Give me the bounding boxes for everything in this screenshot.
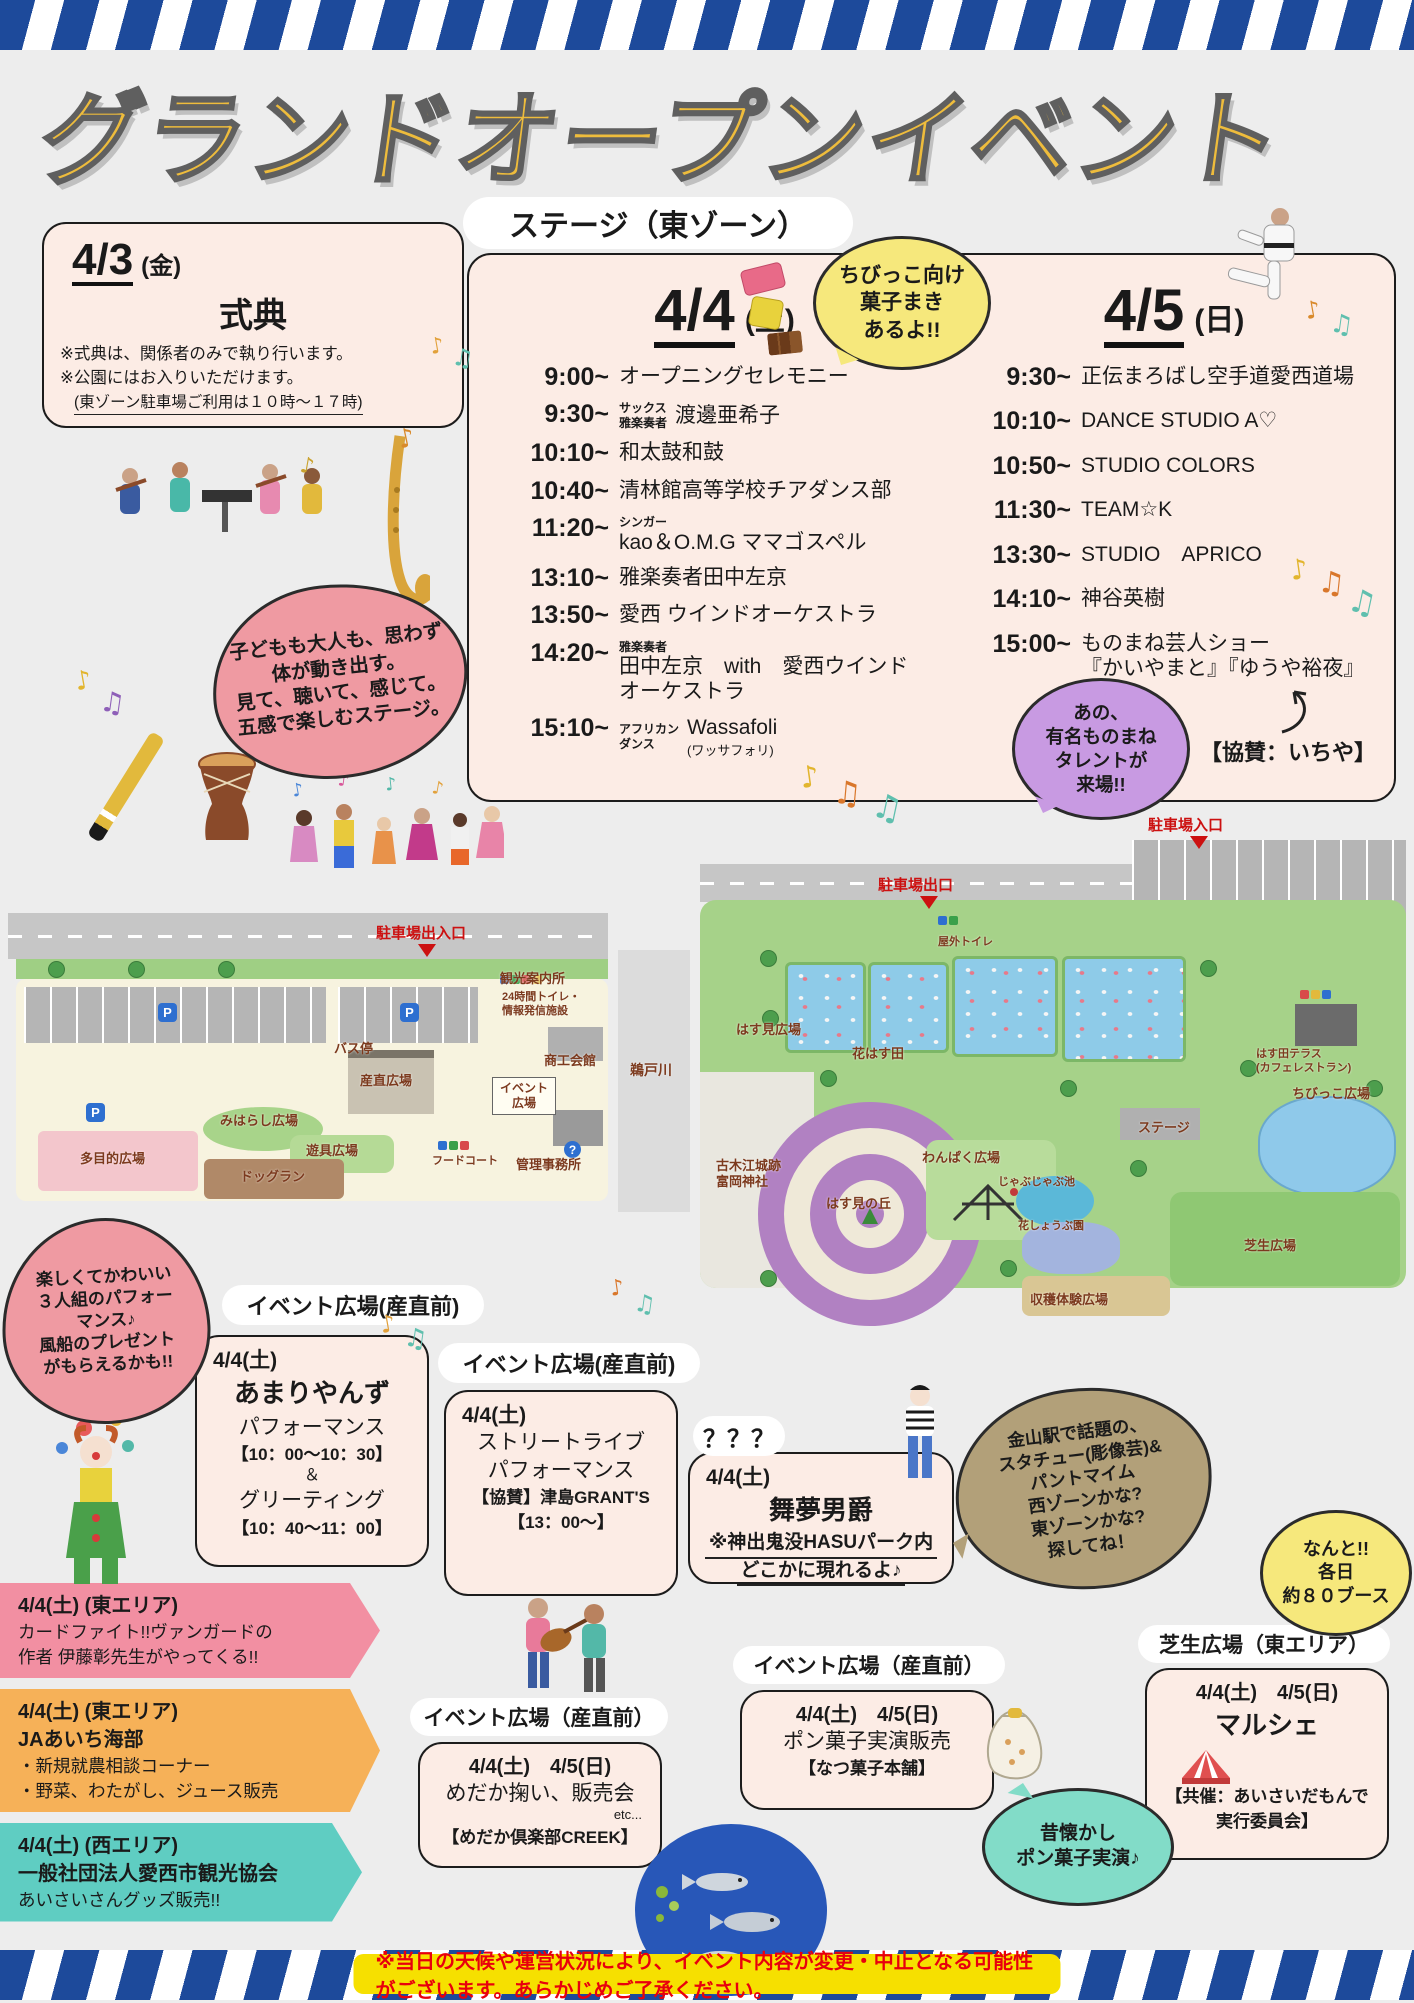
text-line: 実行委員会】: [1216, 1811, 1318, 1833]
schedule-row: 9:30~サックス 雅楽奏者渡邊亜希子: [507, 401, 942, 430]
map-label: わんぱく広場: [922, 1150, 1000, 1166]
statue-bubble: 金山駅で話題の、 スタチュー(彫像芸)& パントマイム 西ゾーンかな? 東ゾーン…: [944, 1373, 1225, 1605]
ceremony-date: 4/3: [72, 238, 133, 286]
schedule-act-wrap: TEAM☆K: [1081, 497, 1172, 522]
schedule-row: 10:10~DANCE STUDIO A♡: [969, 408, 1379, 436]
map-label: 管理事務所: [516, 1157, 581, 1173]
schedule-act: STUDIO COLORS: [1081, 453, 1255, 478]
schedule-act: 田中左京 with 愛西ウインド オーケストラ: [619, 654, 908, 704]
day1-date: 4/4: [654, 281, 735, 348]
text-line: パフォーマンス: [239, 1414, 386, 1441]
west-zone-map: P P P ? バス停観光案内所24時間トイレ・ 情報発信施設産直広場イベント …: [8, 905, 608, 1205]
text-line: 【共催：あいさいだもんで: [1165, 1786, 1368, 1808]
toilet-icons: [938, 916, 958, 925]
medaka-box: 4/4(土) 4/5(日)めだか掬い、販売会etc...【めだか倶楽部CREEK…: [418, 1742, 662, 1868]
ceremony-note-2: ※公園にはお入りいただけます。: [60, 367, 462, 391]
text-line: 4/4(土): [462, 1402, 526, 1429]
schedule-act-wrap: オープニングセレモニー: [619, 364, 849, 389]
map-label: 花はす田: [852, 1046, 904, 1062]
schedule-time: 15:00~: [969, 631, 1071, 659]
band-illustration: [110, 450, 325, 542]
schedule-body: アフリカン ダンスWassafoli(ワッサフォリ): [619, 715, 777, 759]
text-line: 4/4(土) 4/5(日): [1196, 1680, 1338, 1706]
schedule-act-wrap: DANCE STUDIO A♡: [1081, 408, 1277, 433]
schedule-body: ものまね芸人ショー 『かいやまと』『ゆうや裕夜』: [1081, 631, 1365, 681]
music-note-icon: ♪: [73, 665, 95, 697]
schedule-row: 11:20~シンガーkao＆O.M.G ママゴスペル: [507, 515, 942, 555]
east-zone-map: 屋外トイレはす見広場花はす田はす田テラス (カフェレストラン)ちびっこ広場ステー…: [700, 840, 1406, 1318]
schedule-row: 13:30~STUDIO APRICO: [969, 542, 1379, 570]
parking-icon: P: [400, 1003, 419, 1022]
schedule-act-wrap: 雅楽奏者田中左京: [619, 565, 787, 590]
text-line: ストリートライブ: [477, 1429, 645, 1456]
schedule-act: 清林館高等学校チアダンス部: [619, 478, 892, 503]
schedule-genre: 雅楽奏者: [619, 640, 908, 654]
guitar-duo-illustration: [498, 1588, 628, 1714]
west-entrance-label: 駐車場出入口: [376, 922, 466, 943]
schedule-row: 10:40~清林館高等学校チアダンス部: [507, 478, 942, 506]
map-label: イベント 広場: [492, 1077, 556, 1115]
schedule-body: DANCE STUDIO A♡: [1081, 408, 1277, 433]
schedule-act: 神谷英樹: [1081, 586, 1165, 611]
map-label: 産直広場: [360, 1073, 412, 1089]
music-note-icon: ♫: [868, 785, 906, 830]
map-label: 収穫体験広場: [1030, 1292, 1108, 1308]
schedule-row: 14:20~雅楽奏者田中左京 with 愛西ウインド オーケストラ: [507, 640, 942, 705]
ribbon-line: 4/4(土) (西エリア): [18, 1832, 314, 1860]
street-area-pill: イベント広場(産直前): [438, 1343, 700, 1383]
schedule-time: 13:10~: [507, 565, 609, 593]
west-map-labels: バス停観光案内所24時間トイレ・ 情報発信施設産直広場イベント 広場商工会館みは…: [8, 905, 608, 1205]
schedule-genre: アフリカン ダンス: [619, 722, 679, 751]
ceremony-note-1: ※式典は、関係者のみで執り行います。: [60, 343, 462, 367]
amari-box: 4/4(土)あまりやんずパフォーマンス【10：00〜10：30】＆グリーティング…: [195, 1335, 429, 1567]
schedule-act: 和太鼓和鼓: [619, 440, 724, 465]
day2-date: 4/5: [1104, 281, 1185, 348]
text-line: 【10：00〜10：30】: [232, 1444, 393, 1466]
schedule-act: 渡邊亜希子: [675, 403, 780, 428]
river-label: 鵜戸川: [630, 1062, 672, 1080]
east-entrance-out-arrow: [920, 896, 938, 918]
schedule-act: STUDIO APRICO: [1081, 542, 1262, 567]
east-entrance-in-arrow: [1190, 836, 1208, 858]
map-label: フードコート: [432, 1155, 498, 1169]
ribbon-line: JAあいち海部: [18, 1726, 332, 1754]
map-label: 花しょうぶ園: [1018, 1220, 1084, 1234]
river: [618, 950, 690, 1212]
schedule-body: 正伝まろばし空手道愛西道場: [1081, 364, 1354, 389]
info-ribbon: 4/4(土) (東エリア)JAあいち海部・新規就農相談コーナー・野菜、わたがし、…: [0, 1689, 380, 1812]
schedule-body: 和太鼓和鼓: [619, 440, 724, 465]
amari-area-pill: イベント広場(産直前): [222, 1285, 484, 1325]
ribbon-line: ・新規就農相談コーナー: [18, 1754, 332, 1779]
schedule-row: 13:50~愛西 ウインドオーケストラ: [507, 602, 942, 630]
schedule-body: サックス 雅楽奏者渡邊亜希子: [619, 401, 780, 430]
schedule-act-wrap: 愛西 ウインドオーケストラ: [619, 602, 877, 627]
schedule-time: 10:40~: [507, 478, 609, 506]
day2-rows: 9:30~正伝まろばし空手道愛西道場10:10~DANCE STUDIO A♡1…: [969, 364, 1379, 681]
text-line: ＆: [304, 1466, 320, 1487]
music-note-icon: ♫: [402, 1323, 429, 1356]
schedule-body: シンガーkao＆O.M.G ママゴスペル: [619, 515, 866, 555]
circus-tent-icon: [1180, 1748, 1232, 1788]
ceremony-note-3: (東ゾーン駐車場ご利用は１０時〜１７時): [74, 392, 363, 415]
ribbon-line: あいさいさんグッズ販売!!: [18, 1888, 314, 1913]
map-label: 商工会館: [544, 1053, 596, 1069]
street-box: 4/4(土)ストリートライブパフォーマンス【協賛】津島GRANT'S【13：00…: [444, 1390, 678, 1596]
schedule-act: オープニングセレモニー: [619, 364, 849, 389]
map-label: 屋外トイレ: [938, 936, 993, 950]
schedule-time: 9:00~: [507, 364, 609, 392]
schedule-body: 愛西 ウインドオーケストラ: [619, 602, 877, 627]
ribbon-list: 4/4(土) (東エリア)カードファイト!!ヴァンガードの作者 伊藤彰先生がやっ…: [0, 1583, 380, 1922]
ribbon-line: 一般社団法人愛西市観光協会: [18, 1860, 314, 1888]
curved-arrow-icon: [1268, 686, 1318, 734]
food-court-icons: [438, 1141, 469, 1150]
map-label: はす見の丘: [826, 1196, 891, 1212]
schedule-act-wrap: Wassafoli(ワッサフォリ): [687, 715, 777, 759]
music-note-icon: ♫: [98, 684, 127, 720]
schedule-body: 清林館高等学校チアダンス部: [619, 478, 892, 503]
map-label: 観光案内所: [500, 971, 565, 987]
dancing-kids-illustration: [286, 796, 504, 892]
map-label: ちびっこ広場: [1292, 1086, 1370, 1102]
text-line: 4/4(土): [706, 1464, 770, 1491]
text-line: 4/4(土) 4/5(日): [796, 1702, 938, 1728]
text-line: ※神出鬼没HASUパーク内: [705, 1531, 937, 1559]
trio-bubble: 楽しくてかわいい ３人組のパフォー マンス♪ 風船のプレゼント がもらえるかも!…: [0, 1213, 215, 1430]
ponkashi-area-pill: イベント広場（産直前）: [733, 1646, 1005, 1684]
booths-bubble: なんと!! 各日 約８０ブース: [1260, 1510, 1412, 1636]
map-label: はす見広場: [736, 1022, 801, 1038]
page-title: グランドオープンイベント: [32, 58, 1398, 205]
ceremony-notes: ※式典は、関係者のみで執り行います。 ※公園にはお入りいただけます。 (東ゾーン…: [44, 337, 462, 415]
mystery-pill: ？？？: [693, 1416, 785, 1456]
schedule-genre: シンガー: [619, 515, 866, 529]
trio-bubble-tail: [185, 1307, 217, 1339]
text-line: ポン菓子実演販売: [783, 1728, 951, 1755]
schedule-act: 雅楽奏者田中左京: [619, 565, 787, 590]
schedule-body: オープニングセレモニー: [619, 364, 849, 389]
schedule-act-wrap: ものまね芸人ショー 『かいやまと』『ゆうや裕夜』: [1081, 631, 1365, 681]
stage-zone-label: ステージ（東ゾーン）: [463, 197, 853, 249]
schedule-time: 11:20~: [507, 515, 609, 543]
ceremony-box: 4/3 (金) 式典 ※式典は、関係者のみで執り行います。 ※公園にはお入りいた…: [42, 222, 464, 428]
schedule-act-wrap: 正伝まろばし空手道愛西道場: [1081, 364, 1354, 389]
schedule-act-wrap: STUDIO APRICO: [1081, 542, 1262, 567]
schedule-time: 14:10~: [969, 586, 1071, 614]
map-label: ドッグラン: [240, 1169, 305, 1185]
text-line: パフォーマンス: [488, 1457, 635, 1484]
map-label: 多目的広場: [80, 1151, 145, 1167]
schedule-act-wrap: 和太鼓和鼓: [619, 440, 724, 465]
schedule-act: kao＆O.M.G ママゴスペル: [619, 530, 866, 555]
schedule-act: TEAM☆K: [1081, 497, 1172, 522]
djembe-drum-illustration: [196, 752, 258, 844]
event-poster: { "poster": { "title": "グランドオープンイベント", "…: [0, 0, 1414, 2000]
east-map-labels: 屋外トイレはす見広場花はす田はす田テラス (カフェレストラン)ちびっこ広場ステー…: [700, 840, 1406, 1318]
ribbon-line: 4/4(土) (東エリア): [18, 1592, 332, 1620]
schedule-time: 9:30~: [507, 401, 609, 429]
parking-icon: P: [86, 1103, 105, 1122]
schedule-time: 13:30~: [969, 542, 1071, 570]
east-entrance-out-label: 駐車場出口: [878, 874, 953, 895]
schedule-row: 9:30~正伝まろばし空手道愛西道場: [969, 364, 1379, 392]
schedule-row: 15:10~アフリカン ダンスWassafoli(ワッサフォリ): [507, 715, 942, 759]
schedule-act-wrap: STUDIO COLORS: [1081, 453, 1255, 478]
music-note-icon: ♫: [831, 773, 863, 813]
map-label: じゃぶじゃぶ池: [998, 1176, 1075, 1190]
text-line: 【めだか倶楽部CREEK】: [442, 1827, 638, 1849]
text-line: マルシェ: [1215, 1709, 1319, 1743]
map-label: ステージ: [1138, 1120, 1190, 1136]
text-line: 4/4(土) 4/5(日): [469, 1754, 611, 1780]
mime-illustration: [896, 1382, 944, 1482]
clown-illustration: [38, 1398, 156, 1594]
map-label: 古木江城跡 富岡神社: [716, 1158, 781, 1191]
map-label: はす田テラス (カフェレストラン): [1256, 1048, 1351, 1076]
map-label: バス停: [334, 1041, 373, 1057]
schedule-time: 14:20~: [507, 640, 609, 668]
schedule-act: Wassafoli: [687, 715, 777, 740]
rainstick-illustration: [87, 731, 165, 843]
schedule-act: 正伝まろばし空手道愛西道場: [1081, 364, 1354, 389]
ponkashi-bubble-tail: [1008, 1768, 1039, 1799]
schedule-time: 10:10~: [969, 408, 1071, 436]
ceremony-day: (金): [141, 246, 181, 281]
schedule-act-wrap: 田中左京 with 愛西ウインド オーケストラ: [619, 654, 908, 704]
ceremony-date-row: 4/3 (金): [44, 224, 462, 286]
map-label: 芝生広場: [1244, 1238, 1296, 1254]
schedule-time: 10:10~: [507, 440, 609, 468]
schedule-act: ものまね芸人ショー 『かいやまと』『ゆうや裕夜』: [1081, 631, 1365, 681]
day1-rows: 9:00~オープニングセレモニー9:30~サックス 雅楽奏者渡邊亜希子10:10…: [507, 364, 942, 759]
schedule-act: 愛西 ウインドオーケストラ: [619, 602, 877, 627]
schedule-body: 神谷英樹: [1081, 586, 1165, 611]
info-question-icon: ?: [564, 1141, 581, 1158]
schedule-body: TEAM☆K: [1081, 497, 1172, 522]
terrace-icons: [1300, 990, 1331, 999]
music-note-icon: ♫: [1328, 309, 1355, 342]
ponkashi-bubble: 昔懐かし ポン菓子実演♪: [982, 1788, 1174, 1906]
music-note-icon: ♪: [290, 779, 305, 802]
text-line: 【協賛】津島GRANT'S: [472, 1487, 650, 1509]
schedule-body: 雅楽奏者田中左京 with 愛西ウインド オーケストラ: [619, 640, 908, 705]
schedule-act-wrap: 渡邊亜希子: [675, 403, 780, 428]
schedule-row: 10:10~和太鼓和鼓: [507, 440, 942, 468]
disclaimer-banner: ※当日の天候や運営状況により、イベント内容が変更・中止となる可能性がございます。…: [354, 1954, 1061, 1994]
schedule-act-sub: (ワッサフォリ): [687, 740, 777, 759]
schedule-body: STUDIO COLORS: [1081, 453, 1255, 478]
text-line: 【なつ菓子本舗】: [799, 1758, 935, 1780]
schedule-row: 13:10~雅楽奏者田中左京: [507, 565, 942, 593]
music-note-icon: ♫: [1316, 565, 1346, 603]
stage-sponsor: 【協賛：いちや】: [1200, 735, 1376, 767]
east-entrance-in-label: 駐車場入口: [1148, 814, 1223, 835]
schedule-act: DANCE STUDIO A♡: [1081, 408, 1277, 433]
schedule-time: 10:50~: [969, 453, 1071, 481]
text-line: 【13：00〜】: [508, 1512, 614, 1534]
map-label: 遊具広場: [306, 1143, 358, 1159]
text-line: 舞夢男爵: [769, 1494, 873, 1528]
schedule-genre: サックス 雅楽奏者: [619, 401, 667, 430]
text-line: めだか掬い、販売会: [446, 1780, 635, 1807]
ponkashi-box: 4/4(土) 4/5(日)ポン菓子実演販売【なつ菓子本舗】: [740, 1690, 994, 1810]
music-note-icon: ♪: [384, 773, 398, 795]
schedule-body: 雅楽奏者田中左京: [619, 565, 787, 590]
music-note-icon: ♫: [450, 343, 475, 374]
ceremony-title: 式典: [44, 288, 462, 337]
schedule-time: 13:50~: [507, 602, 609, 630]
schedule-act-wrap: 清林館高等学校チアダンス部: [619, 478, 892, 503]
schedule-row: 9:00~オープニングセレモニー: [507, 364, 942, 392]
map-label: みはらし広場: [220, 1113, 298, 1129]
info-ribbon: 4/4(土) (西エリア)一般社団法人愛西市観光協会あいさいさんグッズ販売!!: [0, 1823, 362, 1922]
text-line: 4/4(土): [213, 1347, 277, 1374]
schedule-act-wrap: 神谷英樹: [1081, 586, 1165, 611]
schedule-time: 9:30~: [969, 364, 1071, 392]
schedule-day2-column: 4/5 (日) 9:30~正伝まろばし空手道愛西道場10:10~DANCE ST…: [969, 281, 1379, 681]
schedule-act-wrap: kao＆O.M.G ママゴスペル: [619, 530, 866, 555]
top-stripe-border: [0, 0, 1414, 50]
text-line: どこかに現れるよ♪: [737, 1559, 906, 1587]
ribbon-line: 作者 伊藤彰先生がやってくる!!: [18, 1645, 332, 1670]
text-line: グリーティング: [239, 1487, 385, 1514]
schedule-body: STUDIO APRICO: [1081, 542, 1262, 567]
parking-icon: P: [158, 1003, 177, 1022]
schedule-row: 10:50~STUDIO COLORS: [969, 453, 1379, 481]
schedule-row: 11:30~TEAM☆K: [969, 497, 1379, 525]
ribbon-line: カードファイト!!ヴァンガードの: [18, 1620, 332, 1645]
candy-icons: [742, 266, 802, 354]
map-label: 24時間トイレ・ 情報発信施設: [502, 991, 580, 1019]
ribbon-line: ・野菜、わたがし、ジュース販売: [18, 1779, 332, 1804]
music-note-icon: ♪: [608, 1275, 625, 1302]
schedule-time: 11:30~: [969, 497, 1071, 525]
text-line: 【10：40〜11：00】: [232, 1518, 392, 1540]
schedule-time: 15:10~: [507, 715, 609, 743]
west-entrance-arrow: [418, 944, 436, 966]
ribbon-line: 4/4(土) (東エリア): [18, 1698, 332, 1726]
karate-figure-illustration: [1222, 205, 1312, 305]
music-note-icon: ♫: [632, 1289, 657, 1320]
text-line: あまりやんず: [234, 1377, 390, 1411]
info-ribbon: 4/4(土) (東エリア)カードファイト!!ヴァンガードの作者 伊藤彰先生がやっ…: [0, 1583, 380, 1678]
schedule-row: 15:00~ものまね芸人ショー 『かいやまと』『ゆうや裕夜』: [969, 631, 1379, 681]
